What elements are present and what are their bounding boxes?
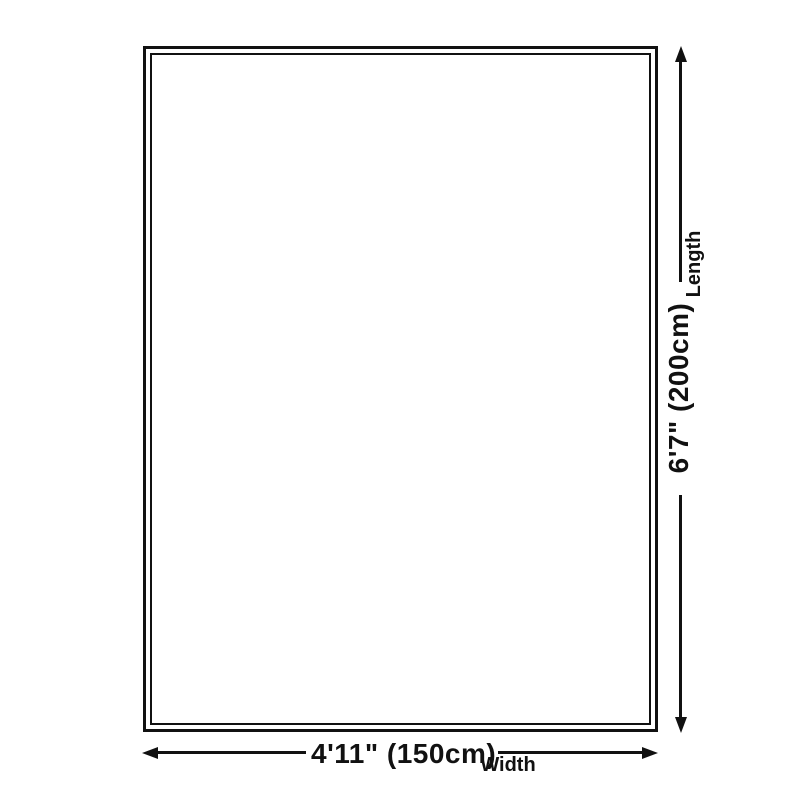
width-value: 4'11" (150cm) (311, 739, 491, 769)
length-dimension-line-lower (679, 495, 682, 717)
rug-outline (143, 46, 658, 732)
arrow-right-icon (642, 747, 658, 759)
rug-inner-outline (150, 53, 651, 725)
length-value: 6'7" (200cm) (663, 278, 695, 498)
width-axis-label: Width (478, 755, 538, 775)
length-dimension-line-upper (679, 60, 682, 282)
width-dimension-line-left (156, 751, 306, 754)
arrow-down-icon (675, 717, 687, 733)
size-diagram: Length 6'7" (200cm) 4'11" (150cm) Width (0, 0, 800, 800)
